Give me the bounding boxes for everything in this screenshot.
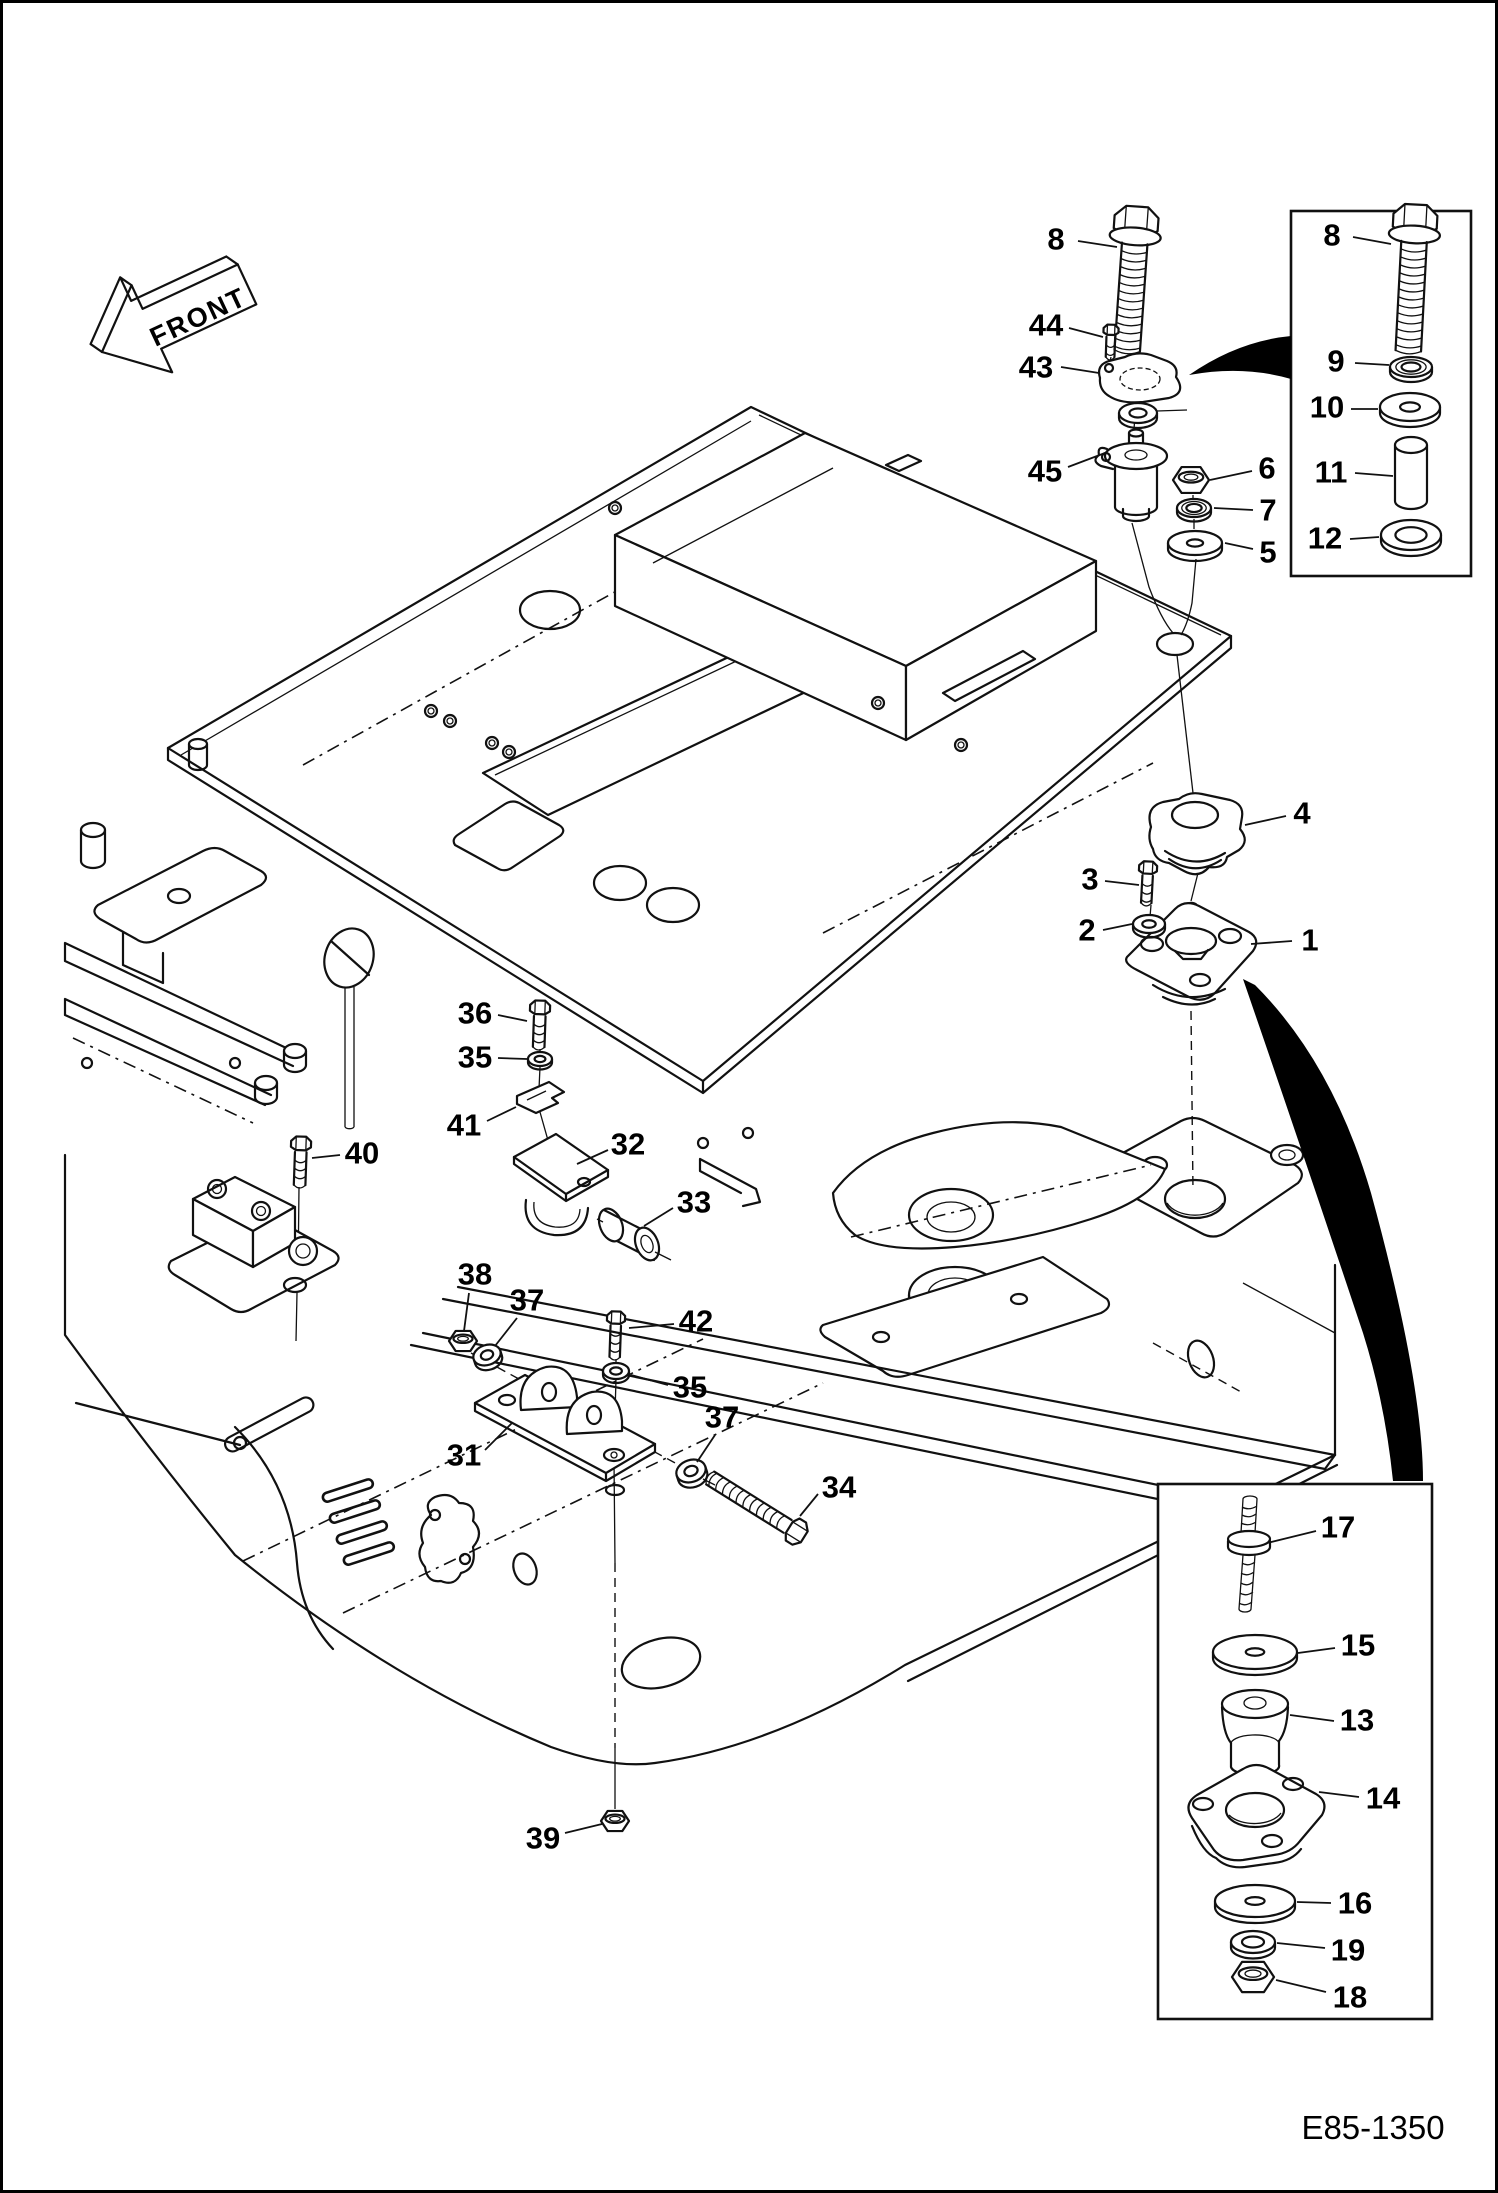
nut-39 [601,1811,629,1831]
callout-label-17: 17 [1321,1510,1355,1545]
washer-5 [1168,531,1222,561]
callout-label-15: 15 [1341,1628,1375,1663]
callout-label-8: 8 [1047,222,1064,257]
callout-label-34: 34 [822,1470,857,1505]
kidney-cutout [419,1495,479,1583]
callout-label-37: 37 [705,1400,739,1435]
callout-leader-4 [1245,816,1286,825]
callout-leader-44 [1069,328,1103,337]
roller-33 [594,1205,671,1264]
washer-under-43 [1119,403,1157,428]
callout-leader-16 [1297,1902,1331,1903]
clip-on-box [886,455,921,471]
figure-code: E85-1350 [1301,2109,1444,2146]
callout-leader-3 [1105,881,1139,885]
louver-slats [322,1478,395,1566]
screw-3 [1137,861,1157,906]
callout-label-43: 43 [1019,350,1053,385]
callout-label-31: 31 [447,1438,481,1473]
callout-label-33: 33 [677,1185,711,1220]
washer-16 [1215,1885,1295,1923]
callout-label-16: 16 [1338,1886,1372,1921]
callout-label-10: 10 [1310,390,1344,425]
parts-diagram-page: 8444345675432136354132334038374235373134… [0,0,1498,2193]
callout-leader-7 [1214,508,1253,510]
callout-leader-2 [1103,924,1132,930]
callout-label-42: 42 [679,1304,713,1339]
callout-label-11: 11 [1315,455,1348,490]
callout-leader-37 [495,1318,517,1346]
callout-leader-41 [487,1107,516,1121]
bolt-40 [290,1136,312,1188]
callout-label-9: 9 [1327,344,1344,379]
callout-leader-36 [498,1015,527,1021]
nut-6 [1173,467,1209,493]
callout-label-7: 7 [1259,493,1276,528]
callout-leader-43 [1061,367,1099,373]
callout-label-5: 5 [1259,535,1276,570]
washer-10 [1380,393,1440,427]
callout-label-6: 6 [1258,451,1275,486]
callout-label-36: 36 [458,996,492,1031]
front-direction-arrow: FRONT [70,230,267,398]
callout-leader-35 [631,1375,668,1385]
callout-label-40: 40 [345,1136,379,1171]
washer-12 [1381,520,1441,556]
screw-44 [1102,324,1118,360]
swoosh-arrow-top [1189,336,1291,379]
washer-35-upper [528,1052,552,1070]
callout-leader-31 [485,1423,512,1450]
bolt-34 [701,1465,811,1547]
callout-leader-6 [1210,471,1252,480]
anchor-bracket-31 [475,1367,655,1481]
lock-plate-43 [1099,353,1180,402]
callout-leader-8 [1078,241,1117,247]
callout-label-13: 13 [1340,1703,1374,1738]
exploded-parts-diagram: 8444345675432136354132334038374235373134… [3,3,1498,2193]
callout-label-38: 38 [458,1257,492,1292]
washer-15 [1213,1635,1297,1675]
callout-label-19: 19 [1331,1933,1365,1968]
screw-42 [606,1311,626,1360]
callout-leader-39 [565,1824,602,1833]
callout-leader-35 [498,1058,527,1059]
cup-mount-45 [1095,430,1167,522]
callout-label-12: 12 [1308,521,1342,556]
callout-label-14: 14 [1366,1781,1401,1816]
bolt-36 [529,1000,551,1050]
stop-bracket-32 [514,1134,608,1235]
callout-label-4: 4 [1293,796,1311,831]
callout-label-41: 41 [447,1108,481,1143]
callout-label-45: 45 [1028,454,1062,489]
callout-label-2: 2 [1078,913,1095,948]
clamp-4 [1149,793,1244,874]
nut-18 [1232,1962,1274,1992]
callout-label-39: 39 [526,1821,560,1856]
washer-35-lower [603,1363,629,1383]
swoosh-arrow-bottom [1243,979,1423,1481]
callout-label-35: 35 [673,1370,707,1405]
callout-leader-40 [312,1155,340,1158]
clip-41 [517,1082,564,1113]
callout-label-37: 37 [510,1283,544,1318]
callout-label-8: 8 [1323,218,1340,253]
mount-stack-detail [1158,1484,1432,2019]
lock-washer-7 [1177,499,1211,522]
nut-38 [449,1331,477,1351]
callout-label-32: 32 [611,1127,645,1162]
damper-block-40 [169,1177,339,1312]
washer-37-lower [673,1456,710,1491]
callout-leader-33 [644,1208,673,1226]
callout-label-44: 44 [1029,308,1064,343]
callout-leader-38 [464,1293,469,1331]
callout-leader-5 [1225,543,1253,549]
callout-label-18: 18 [1333,1980,1367,2015]
callout-label-1: 1 [1301,923,1318,958]
callout-label-3: 3 [1081,862,1098,897]
callout-leader-34 [800,1494,818,1516]
callout-label-35: 35 [458,1040,492,1075]
